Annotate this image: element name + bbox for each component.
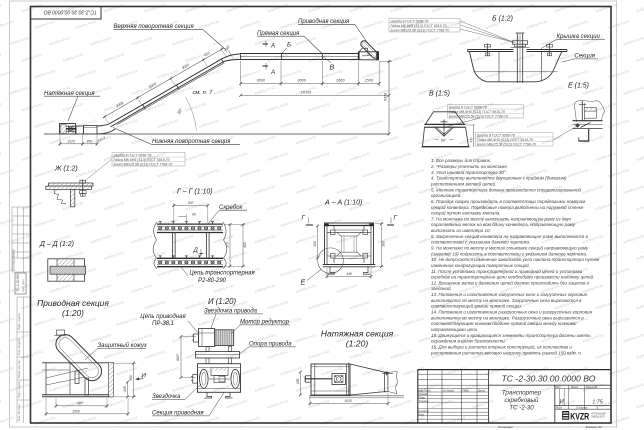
svg-text:16. Для выбора и расчета опор: 16. Для выбора и расчета опорных констру… <box>431 343 572 349</box>
svg-text:ТС -2-30.30.00.0000 ВО: ТС -2-30.30.00.0000 ВО <box>502 373 596 383</box>
svg-text:выполнить из швеллера 10.: выполнить из швеллера 10. <box>431 228 491 233</box>
svg-text:Гайка М8-6Н5 (S13) ГОСТ 5915-: Гайка М8-6Н5 (S13) ГОСТ 5915-70 <box>391 24 447 28</box>
svg-text:ТС-2-30 ВО: ТС-2-30 ВО <box>16 273 20 292</box>
svg-text:Т.контр.: Т.контр. <box>419 399 430 403</box>
svg-text:Цепь приводная: Цепь приводная <box>140 314 186 320</box>
svg-text:Дата: Дата <box>477 389 485 393</box>
svg-text:см. п. 7: см. п. 7 <box>193 90 214 96</box>
svg-text:Ж (1:2): Ж (1:2) <box>54 166 78 173</box>
svg-text:800*: 800* <box>176 353 180 361</box>
svg-text:Формат А2: Формат А2 <box>586 425 603 429</box>
svg-text:изменения конфигурации поворот: изменения конфигурации поворотных секций… <box>431 262 530 268</box>
svg-text:14. Положения и изготовления: 14. Положения и изготовления разгрузочны… <box>431 310 593 315</box>
svg-text:1500: 1500 <box>365 79 374 83</box>
svg-text:3000: 3000 <box>257 79 266 83</box>
svg-text:170: 170 <box>226 242 230 248</box>
svg-text:3. Угол наклона транспортера: 3. Угол наклона транспортера 30°. <box>431 170 507 175</box>
svg-text:И (1:20): И (1:20) <box>208 297 237 306</box>
svg-text:А – А (1:10): А – А (1:10) <box>324 200 362 207</box>
svg-text:15. Движущиеся и вращающиеся: 15. Движущиеся и вращающиеся элементы тр… <box>431 333 591 338</box>
svg-text:Подп. и дата: Подп. и дата <box>17 381 21 398</box>
svg-text:соответствии с указанием данно: соответствии с указанием данного чертежа… <box>431 240 530 245</box>
svg-text:8. Закрепление секций конвейе: 8. Закрепление секций конвейера на напра… <box>431 233 589 239</box>
svg-text:Шайба 8 ГОСТ 6958-78: Шайба 8 ГОСТ 6958-78 <box>477 133 515 137</box>
svg-text:соответствующей крыше прямой с: соответствующей крыше прямой секции. <box>431 303 522 309</box>
svg-text:Скребок: Скребок <box>219 205 244 211</box>
svg-text:Болт М8х25.58 (S13) ГОСТ 7798: Болт М8х25.58 (S13) ГОСТ 7798-70 <box>391 28 450 32</box>
svg-text:Е (1:5): Е (1:5) <box>568 83 589 90</box>
svg-text:Крышка секции: Крышка секции <box>557 34 601 40</box>
svg-text:Натяжная секция: Натяжная секция <box>321 329 394 339</box>
svg-text:скребковый: скребковый <box>505 397 540 404</box>
svg-text:12. Вращение валов и движение: 12. Вращение валов и движение цепей долж… <box>431 279 590 285</box>
svg-text:11. После установки транспорт: 11. После установки транспортерной и при… <box>431 268 583 274</box>
svg-text:Лист: Лист <box>555 407 562 410</box>
svg-text:Секция: Секция <box>575 54 596 60</box>
svg-text:И: И <box>141 372 146 379</box>
svg-text:245: 245 <box>123 386 127 393</box>
svg-text:4,5±: 4,5± <box>469 137 473 143</box>
svg-text:ограждения в целях безопасност: ограждения в целях безопасности. <box>431 339 506 344</box>
svg-text:Подп. и дата: Подп. и дата <box>17 313 21 330</box>
svg-text:255: 255 <box>296 379 300 386</box>
svg-text:Д: Д <box>193 247 199 254</box>
svg-text:подп. дата: подп. дата <box>22 279 25 292</box>
svg-text:Согласовано: Согласовано <box>12 249 16 271</box>
svg-text:организацией.: организацией. <box>431 192 462 198</box>
svg-text:5. Монтаж транспортера должен: 5. Монтаж транспортера должен производит… <box>431 186 581 192</box>
svg-text:ПР-38,1: ПР-38,1 <box>152 321 174 327</box>
svg-text:выполняются по месту на монтаж: выполняются по месту на монтаже. Разгруз… <box>431 315 584 320</box>
svg-text:выполняются по месту на монтаж: выполняются по месту на монтаже. Загрузо… <box>431 298 582 303</box>
svg-text:Гайка М8-6Н5 (S13) ГОСТ 5915-: Гайка М8-6Н5 (S13) ГОСТ 5915-70 <box>449 110 505 114</box>
svg-text:Лит.: Лит. <box>555 386 562 389</box>
svg-text:80: 80 <box>192 213 196 217</box>
svg-text:Масштаб: Масштаб <box>586 386 598 389</box>
svg-text:1:75: 1:75 <box>592 400 603 406</box>
svg-text:560: 560 <box>129 375 133 381</box>
svg-text:Прямая секция: Прямая секция <box>257 31 300 37</box>
svg-text:4. Транспортер выполняется д: 4. Транспортер выполняется двухцепным с … <box>431 175 567 181</box>
svg-text:Секция приводная: Секция приводная <box>152 411 204 417</box>
svg-text:Звездочка: Звездочка <box>152 394 181 400</box>
svg-text:секций конвейера. Порядковые н: секций конвейера. Порядковые номера выпо… <box>431 204 584 210</box>
svg-text:10. Не допускается изменение з: 10. Не допускается изменение заводского … <box>431 257 599 262</box>
svg-text:Инв. № дубл.: Инв. № дубл. <box>17 337 21 355</box>
svg-text:6. Порядок сварки производить: 6. Порядок сварки производить в соответс… <box>431 199 585 204</box>
svg-text:Болт М8х25.58 (S13) ГОСТ 7798: Болт М8х25.58 (S13) ГОСТ 7798-70 <box>114 162 173 166</box>
svg-text:направляющими цепи.: направляющими цепи. <box>431 327 478 332</box>
svg-text:ТС -2-30: ТС -2-30 <box>509 405 534 412</box>
svg-text:780*: 780* <box>77 401 85 405</box>
svg-text:5430: 5430 <box>383 93 387 101</box>
svg-text:2. *Размеры уточнить на монта: 2. *Размеры уточнить на монтаже. <box>430 164 508 169</box>
svg-text:(1:20): (1:20) <box>62 308 84 318</box>
svg-text:А: А <box>270 69 275 76</box>
svg-text:Д – Д (1:2): Д – Д (1:2) <box>39 241 74 248</box>
svg-text:КОТЕЛЬНЫЙ: КОТЕЛЬНЫЙ <box>591 413 606 416</box>
svg-text:расположением ветвей цепей.: расположением ветвей цепей. <box>430 181 496 187</box>
svg-text:ТС-2-30.30.00.0000 ВО: ТС-2-30.30.00.0000 ВО <box>44 9 97 15</box>
svg-text:Защитный кожух: Защитный кожух <box>98 342 148 349</box>
svg-text:360: 360 <box>382 241 386 247</box>
svg-text:400: 400 <box>243 242 247 248</box>
svg-text:320: 320 <box>188 201 194 205</box>
svg-text:13. Положения и изготовления з: 13. Положения и изготовления загрузочных… <box>431 292 588 297</box>
svg-text:Мотор редуктор: Мотор редуктор <box>240 320 290 326</box>
svg-text:10165: 10165 <box>301 90 312 94</box>
svg-text:А: А <box>270 43 275 50</box>
svg-text:В: В <box>330 65 335 72</box>
svg-text:Разраб.: Разраб. <box>419 392 429 396</box>
svg-text:(1:20): (1:20) <box>346 339 369 349</box>
svg-text:1. Все размеры для справок.: 1. Все размеры для справок. <box>431 158 491 163</box>
svg-text:Пров.: Пров. <box>419 396 426 400</box>
svg-text:Изм.Лист: Изм.Лист <box>419 389 432 393</box>
svg-text:Шайба 8 ГОСТ 6958-78: Шайба 8 ГОСТ 6958-78 <box>449 105 487 109</box>
svg-text:Гайка М8-6Н5 (S13) ГОСТ 5915-: Гайка М8-6Н5 (S13) ГОСТ 5915-70 <box>114 158 170 162</box>
svg-text:1515: 1515 <box>344 399 352 403</box>
svg-text:В (1:5): В (1:5) <box>429 91 450 98</box>
svg-text:Опора привода: Опора привода <box>249 342 292 348</box>
svg-text:скребков на транспортерные цеп: скребков на транспортерные цепи необходи… <box>431 274 594 280</box>
svg-text:ЗАВОД ФЭП: ЗАВОД ФЭП <box>591 416 605 419</box>
svg-text:Масса: Масса <box>571 386 579 389</box>
svg-text:1500: 1500 <box>72 409 80 413</box>
svg-text:Утв.: Утв. <box>419 412 425 416</box>
svg-text:соответствующем нижнем поддоне: соответствующем нижнем поддоне прямой се… <box>431 320 577 326</box>
svg-text:KVZR: KVZR <box>570 411 589 422</box>
svg-text:Звездочка привода: Звездочка привода <box>204 309 258 315</box>
svg-text:3000: 3000 <box>297 79 306 83</box>
svg-text:Б: Б <box>287 41 291 48</box>
svg-text:№ докум.: № докум. <box>443 389 455 393</box>
svg-text:Подп.: Подп. <box>463 389 470 393</box>
svg-text:9. На монтаже по месту в мест: 9. На монтаже по месту в местах стыковки… <box>431 245 589 251</box>
svg-text:Г: Г <box>394 215 398 222</box>
svg-text:Б (1:2): Б (1:2) <box>492 16 513 23</box>
svg-text:секций путем наплавки метала.: секций путем наплавки метала. <box>431 210 501 216</box>
svg-text:850: 850 <box>87 140 93 144</box>
svg-text:Болт М8х25.58 (S13) ГОСТ 7798: Болт М8х25.58 (S13) ГОСТ 7798-70 <box>477 142 536 146</box>
svg-text:Транспортер: Транспортер <box>502 389 542 396</box>
svg-text:7. На монтаже по месту выполн: 7. На монтаже по месту выполнить направл… <box>431 216 572 221</box>
svg-text:заеданий.: заеданий. <box>430 285 452 291</box>
svg-text:Листов: Листов <box>578 407 588 410</box>
svg-text:расположения расчетно-весовую: расположения расчетно-весовую нагрузку п… <box>430 349 582 355</box>
svg-text:2660: 2660 <box>335 79 345 83</box>
svg-text:300: 300 <box>313 241 317 247</box>
svg-text:Шайба 8 ГОСТ 6958-78: Шайба 8 ГОСТ 6958-78 <box>391 19 429 23</box>
svg-text:1515: 1515 <box>67 140 75 144</box>
svg-text:Цепь транспортерная: Цепь транспортерная <box>189 271 255 277</box>
svg-text:Г – Г (1:10): Г – Г (1:10) <box>177 189 213 196</box>
svg-text:Взам. инв. №: Взам. инв. № <box>17 361 21 378</box>
svg-text:И: И <box>560 400 565 406</box>
svg-text:Г: Г <box>302 215 306 222</box>
svg-text:Е: Е <box>301 278 306 287</box>
svg-text:Р2-80-290: Р2-80-290 <box>198 278 227 284</box>
svg-text:Копировал: Копировал <box>498 425 513 429</box>
svg-text:Инв. № подл.: Инв. № подл. <box>17 403 21 421</box>
svg-text:Н.контр.: Н.контр. <box>419 409 430 413</box>
svg-text:Шайба 8 ГОСТ 6958-78: Шайба 8 ГОСТ 6958-78 <box>114 153 152 157</box>
svg-text:340: 340 <box>346 272 352 276</box>
svg-text:Гайка М8-6Н5 (S13) ГОСТ 5915-: Гайка М8-6Н5 (S13) ГОСТ 5915-70 <box>477 138 533 142</box>
svg-text:Приводная секция: Приводная секция <box>37 298 109 308</box>
svg-text:(швеллер 10) подрезать в соо: (швеллер 10) подрезать в соответствии с … <box>431 251 587 256</box>
svg-text:90°: 90° <box>441 138 447 142</box>
svg-text:параллельных веток на всю длин: параллельных веток на всю длину конвейер… <box>431 221 576 227</box>
